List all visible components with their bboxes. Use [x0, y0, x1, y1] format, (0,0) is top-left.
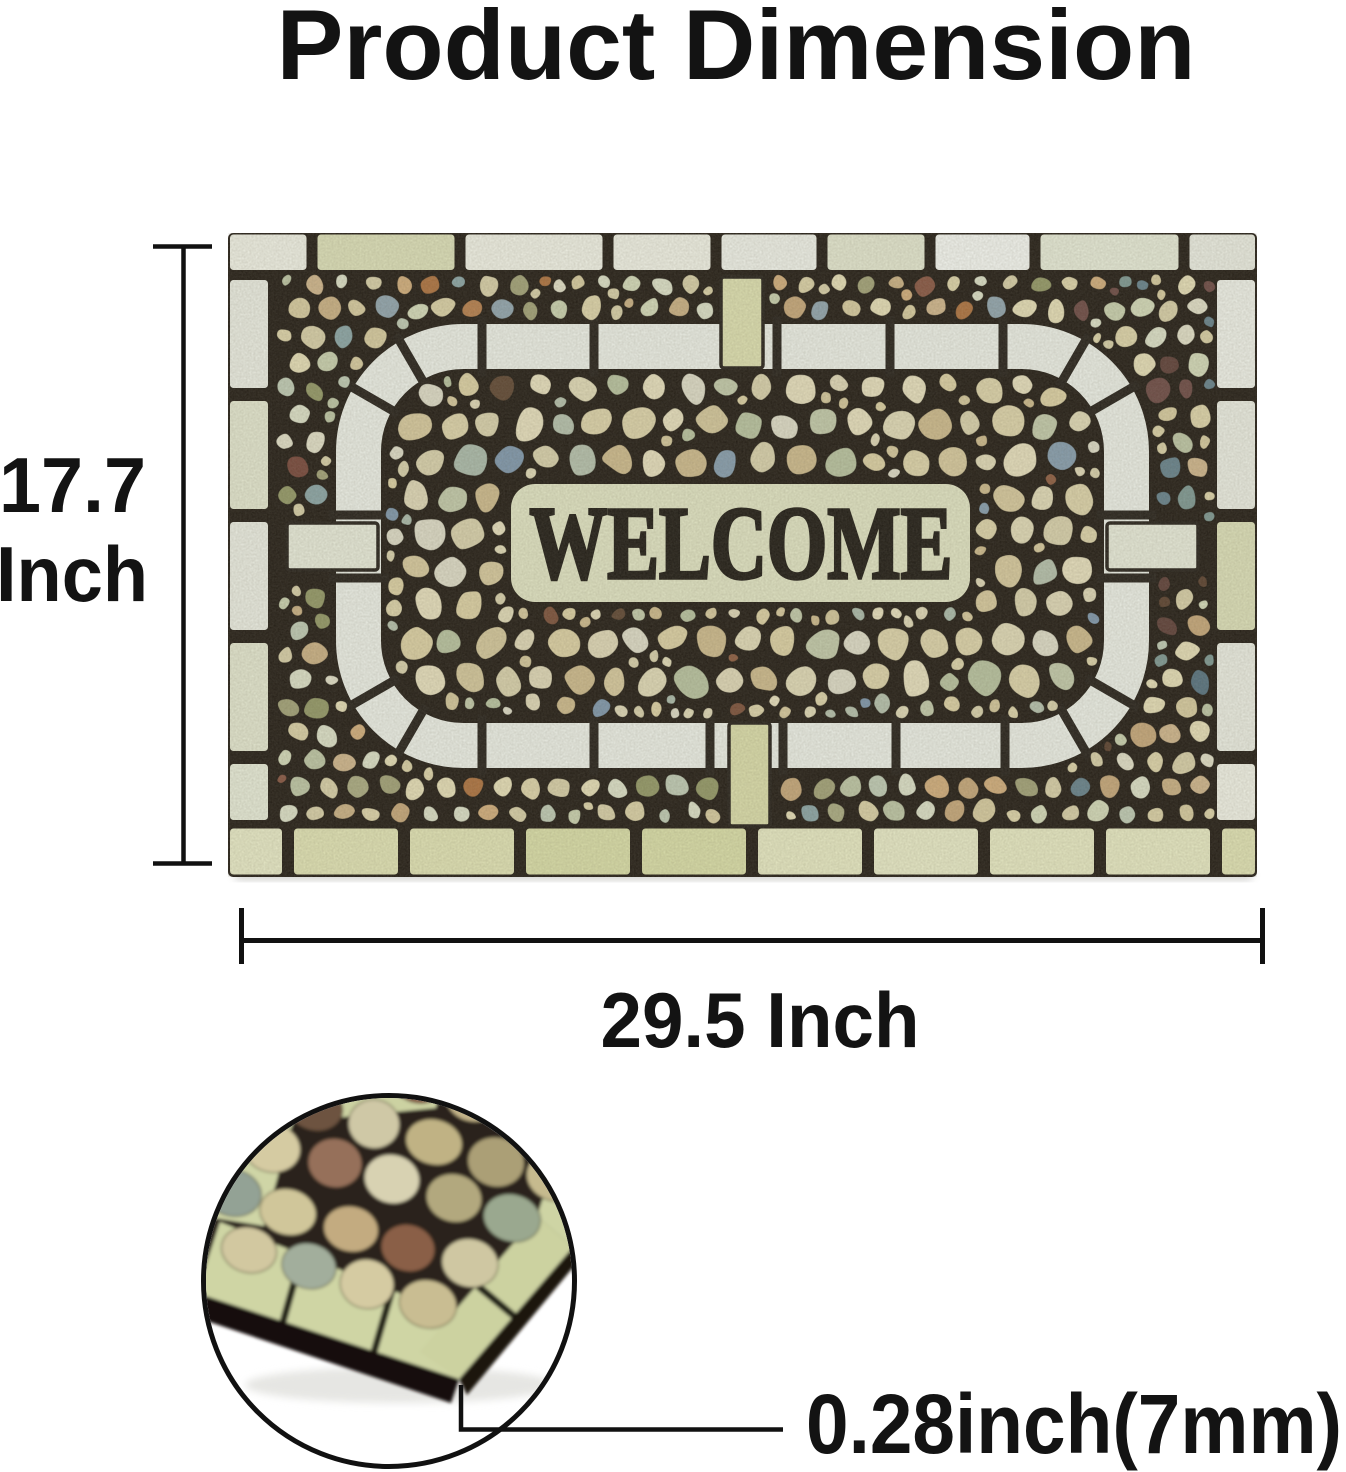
svg-text:17.7: 17.7 [0, 441, 146, 529]
svg-text:Product Dimension: Product Dimension [277, 0, 1196, 100]
svg-text:29.5 Inch: 29.5 Inch [601, 976, 920, 1064]
svg-text:0.28inch(7mm): 0.28inch(7mm) [806, 1377, 1342, 1471]
svg-text:Inch: Inch [0, 530, 148, 618]
